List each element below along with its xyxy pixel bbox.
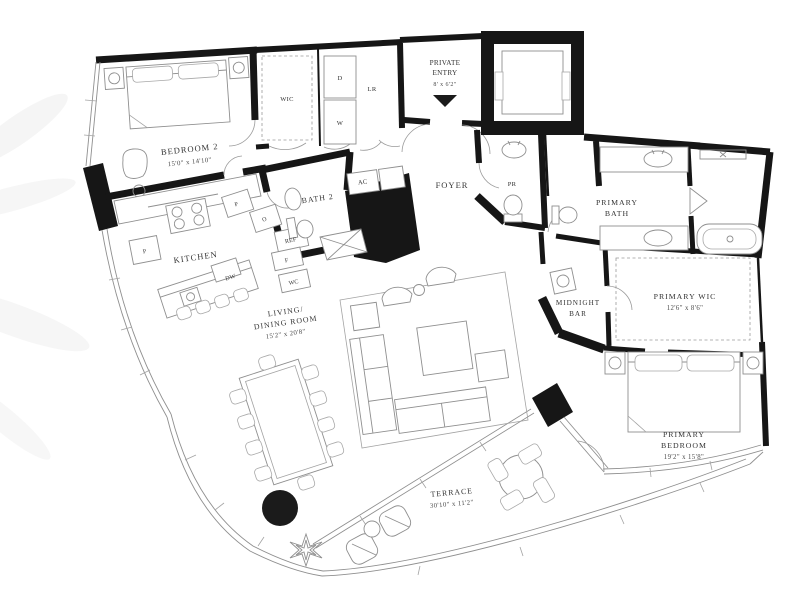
powder-room-label: PR: [508, 181, 517, 188]
terrace-plant: [290, 534, 322, 566]
foyer-label: FOYER: [436, 180, 469, 190]
floor-plan-drawing: BEDROOM 2 15'0" x 14'10" WIC D W LR PRIV…: [0, 0, 800, 600]
bath2-label: BATH 2: [301, 192, 334, 205]
laundry-closet: [324, 56, 356, 144]
primary-bedroom-dims: 19'2" x 15'8": [664, 454, 704, 461]
structural-column: [262, 490, 298, 526]
living-dining-dims: 15'2" x 20'8": [265, 328, 306, 341]
living-dining-label-2: DINING ROOM: [253, 314, 318, 332]
midnight-bar-label-1: MIDNIGHT: [556, 299, 600, 307]
kitchen-label: KITCHEN: [173, 249, 218, 265]
terrace-label: TERRACE: [430, 486, 473, 499]
palm-watermark: [0, 84, 95, 468]
terrace-dims: 30'10" x 11'2": [430, 499, 474, 510]
dryer-label: D: [338, 75, 343, 82]
primary-bedroom-label-2: BEDROOM: [661, 441, 707, 450]
primary-bedroom-furniture: [605, 352, 763, 432]
bedroom2-furniture: [104, 56, 252, 130]
living-room-furniture: [340, 267, 528, 448]
private-entry-label-2: ENTRY: [432, 69, 458, 77]
dining-table: [229, 354, 345, 491]
terrace-dining-set: [486, 442, 556, 511]
wic-label: WIC: [280, 96, 294, 103]
ac-label: AC: [358, 178, 369, 186]
bedroom2-label: BEDROOM 2: [160, 141, 219, 157]
washer-label: W: [337, 120, 344, 127]
primary-wic-dims: 12'6" x 8'6": [667, 305, 704, 312]
entry-direction-marker: [433, 95, 457, 107]
private-entry-label-1: PRIVATE: [430, 59, 461, 67]
midnight-bar-label-2: BAR: [569, 310, 587, 318]
primary-bath-label-1: PRIMARY: [596, 198, 638, 207]
terrace-lounge: [344, 503, 414, 567]
primary-wic-label: PRIMARY WIC: [654, 292, 717, 301]
midnight-bar-fixture: [550, 268, 576, 294]
floor-plan-page: BEDROOM 2 15'0" x 14'10" WIC D W LR PRIV…: [0, 0, 800, 600]
primary-tub-room: [697, 150, 762, 254]
bedroom2-dims: 15'0" x 14'10": [168, 157, 213, 169]
primary-bedroom-label-1: PRIMARY: [663, 430, 705, 439]
linen-label: LR: [368, 86, 377, 93]
primary-bath-label-2: BATH: [605, 209, 629, 218]
private-entry-dims: 8' x 6'2": [433, 82, 456, 88]
